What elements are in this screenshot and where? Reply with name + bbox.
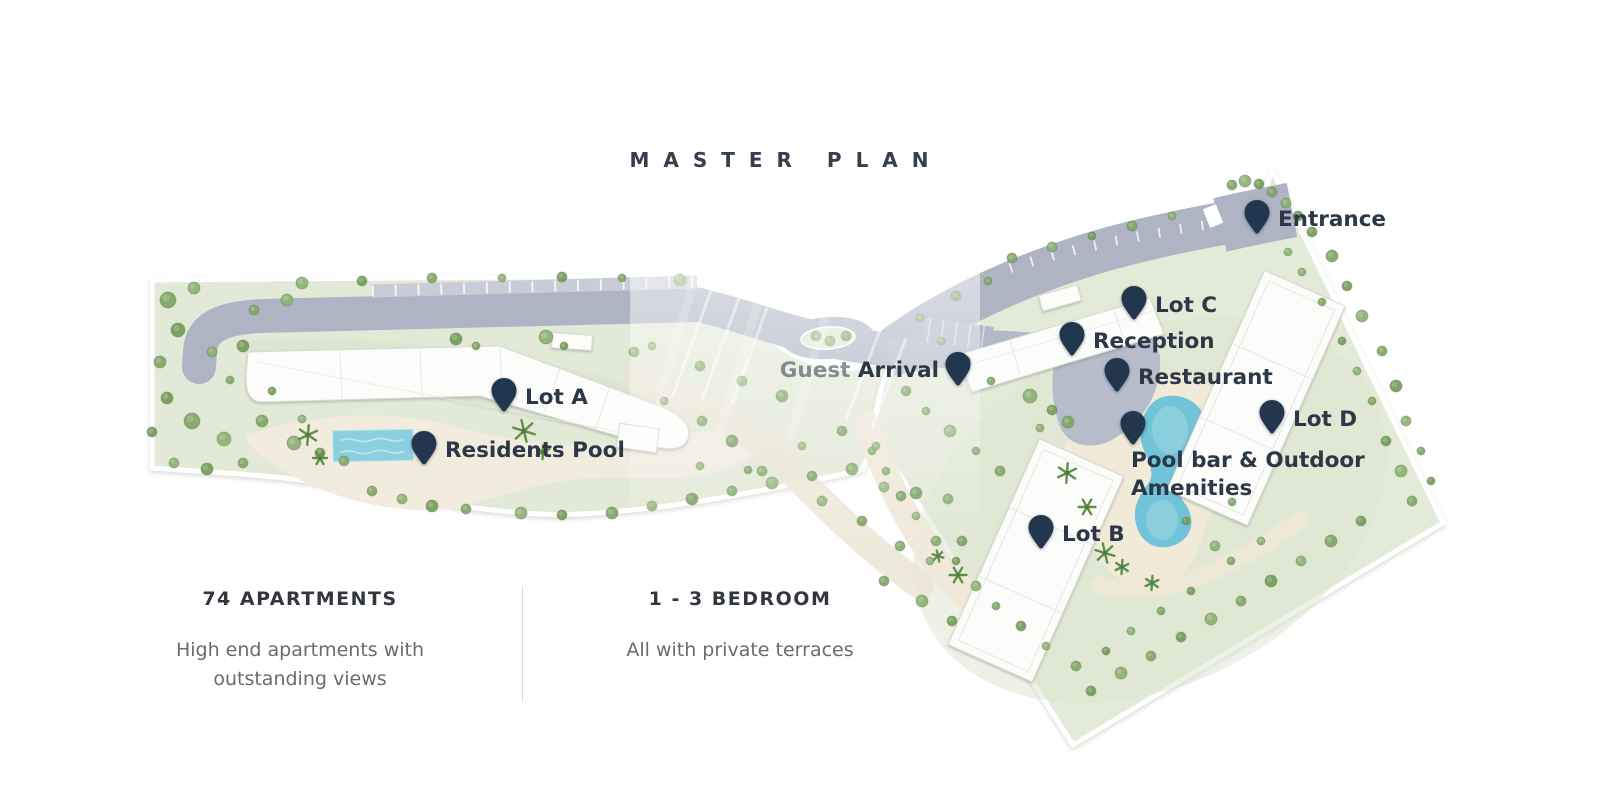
stat-apartments-description: High end apartments with outstanding vie… [169, 636, 431, 694]
stat-apartments: 74 APARTMENTS High end apartments with o… [150, 588, 450, 694]
restaurant-pin-icon [1103, 357, 1131, 393]
stat-apartments-heading: 74 APARTMENTS [150, 588, 450, 610]
marker-label-pool-bar-outdoor-amenities: Pool bar & Outdoor Amenities [1131, 447, 1381, 503]
marker-label-lot-d: Lot D [1293, 406, 1357, 434]
center-fade-overlay [630, 252, 980, 582]
marker-label-residents-pool: Residents Pool [445, 437, 625, 465]
stat-bedrooms: 1 - 3 BEDROOM All with private terraces [590, 588, 890, 665]
guest-arrival-pin-icon [944, 351, 972, 387]
marker-label-entrance: Entrance [1278, 206, 1386, 234]
lot-b-pin-icon [1027, 514, 1055, 550]
page-title: MASTER PLAN [0, 148, 1572, 172]
residents-pool-pin-icon [410, 430, 438, 466]
marker-label-reception: Reception [1093, 328, 1215, 356]
marker-label-lot-a: Lot A [525, 384, 588, 412]
lot-c-pin-icon [1120, 285, 1148, 321]
stats-divider [522, 586, 523, 702]
marker-label-lot-c: Lot C [1155, 292, 1217, 320]
stat-bedrooms-heading: 1 - 3 BEDROOM [590, 588, 890, 610]
marker-label-restaurant: Restaurant [1138, 364, 1273, 392]
entrance-pin-icon [1243, 199, 1271, 235]
lot-d-pin-icon [1258, 399, 1286, 435]
marker-label-guest-arrival: Guest Arrival [780, 357, 939, 385]
marker-label-lot-b: Lot B [1062, 521, 1125, 549]
reception-pin-icon [1058, 321, 1086, 357]
master-plan-page: MASTER PLAN EntranceLot CReceptionRestau… [0, 0, 1600, 801]
stat-bedrooms-description: All with private terraces [609, 636, 871, 665]
pool-bar-outdoor-amenities-pin-icon [1119, 410, 1147, 446]
lot-a-pin-icon [490, 377, 518, 413]
